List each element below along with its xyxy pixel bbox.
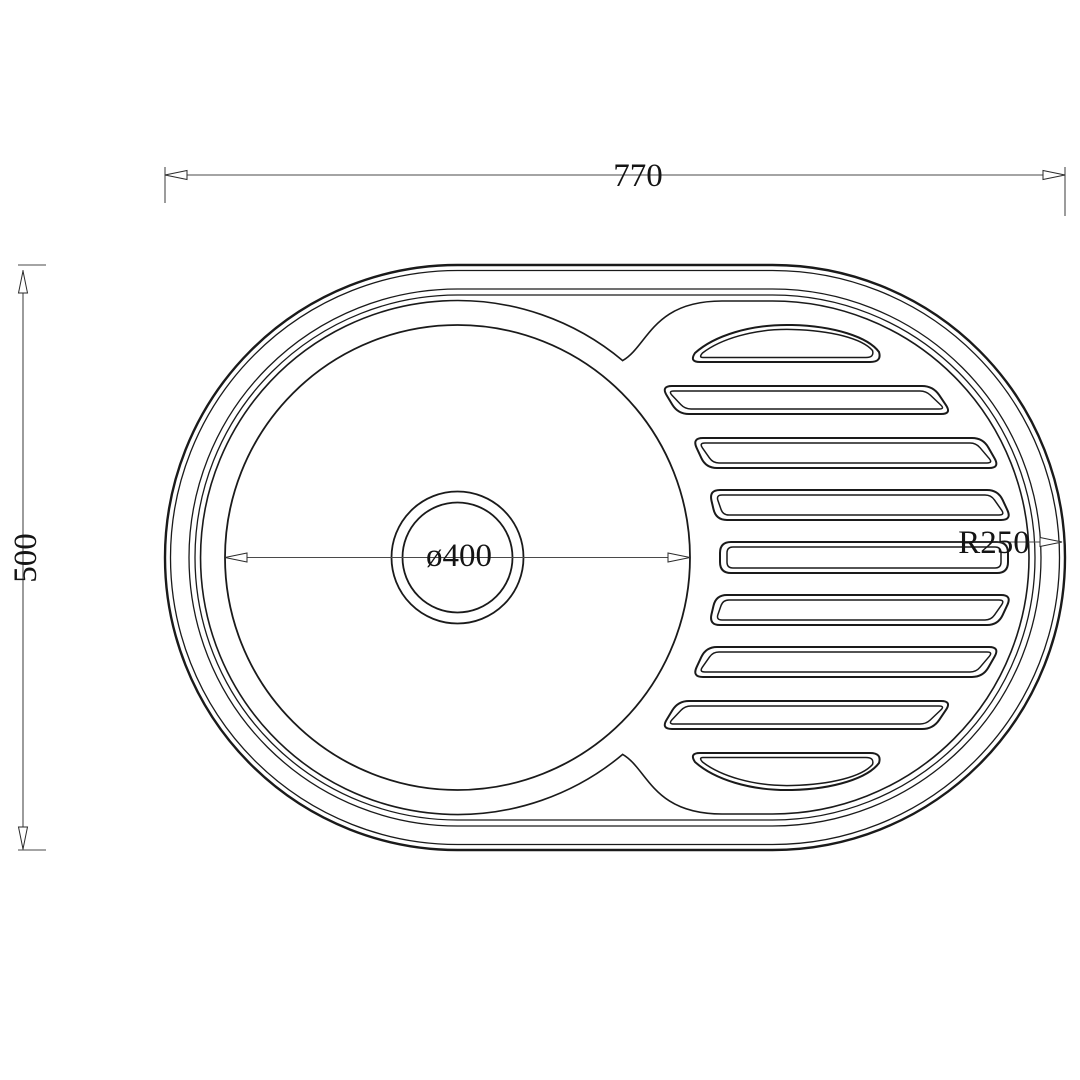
width-dimension-label: 770 xyxy=(613,158,663,194)
dimension-arrow xyxy=(19,271,28,293)
bowl-diameter-label: ø400 xyxy=(426,538,492,574)
dimension-overall-height: 500 xyxy=(8,265,46,850)
drainer-rib-inner-line xyxy=(701,443,990,463)
dimension-arrow xyxy=(165,171,187,180)
drainer-rib-inner-line xyxy=(717,600,1002,620)
drainer-rib xyxy=(665,701,948,729)
dimension-overall-width: 770 xyxy=(165,158,1065,216)
sink-technical-drawing: 770 500 ø400 R250 xyxy=(0,0,1080,1080)
height-dimension-label: 500 xyxy=(8,533,44,583)
drainer-rib-inner-line xyxy=(701,652,990,672)
drainer-ribs xyxy=(665,386,1009,729)
drainer-rib-inner-line xyxy=(717,495,1002,515)
end-radius-label: R250 xyxy=(958,525,1030,561)
dimension-bowl-diameter: ø400 xyxy=(225,538,690,574)
dimension-arrows xyxy=(19,171,1066,850)
dimension-arrow xyxy=(225,553,247,562)
drainer-rib-inner-line xyxy=(670,706,942,724)
sink-technical-drawing-page: 770 500 ø400 R250 xyxy=(0,0,1080,1080)
dimension-arrow xyxy=(19,827,28,849)
dimension-arrow xyxy=(668,553,690,562)
drainer-rib-inner-line xyxy=(670,391,942,409)
drainer-rib-crescent-top xyxy=(693,325,880,362)
drainer-rib-crescent-bottom xyxy=(693,753,880,790)
drainer-rib xyxy=(665,386,948,414)
dimension-arrow xyxy=(1043,171,1065,180)
